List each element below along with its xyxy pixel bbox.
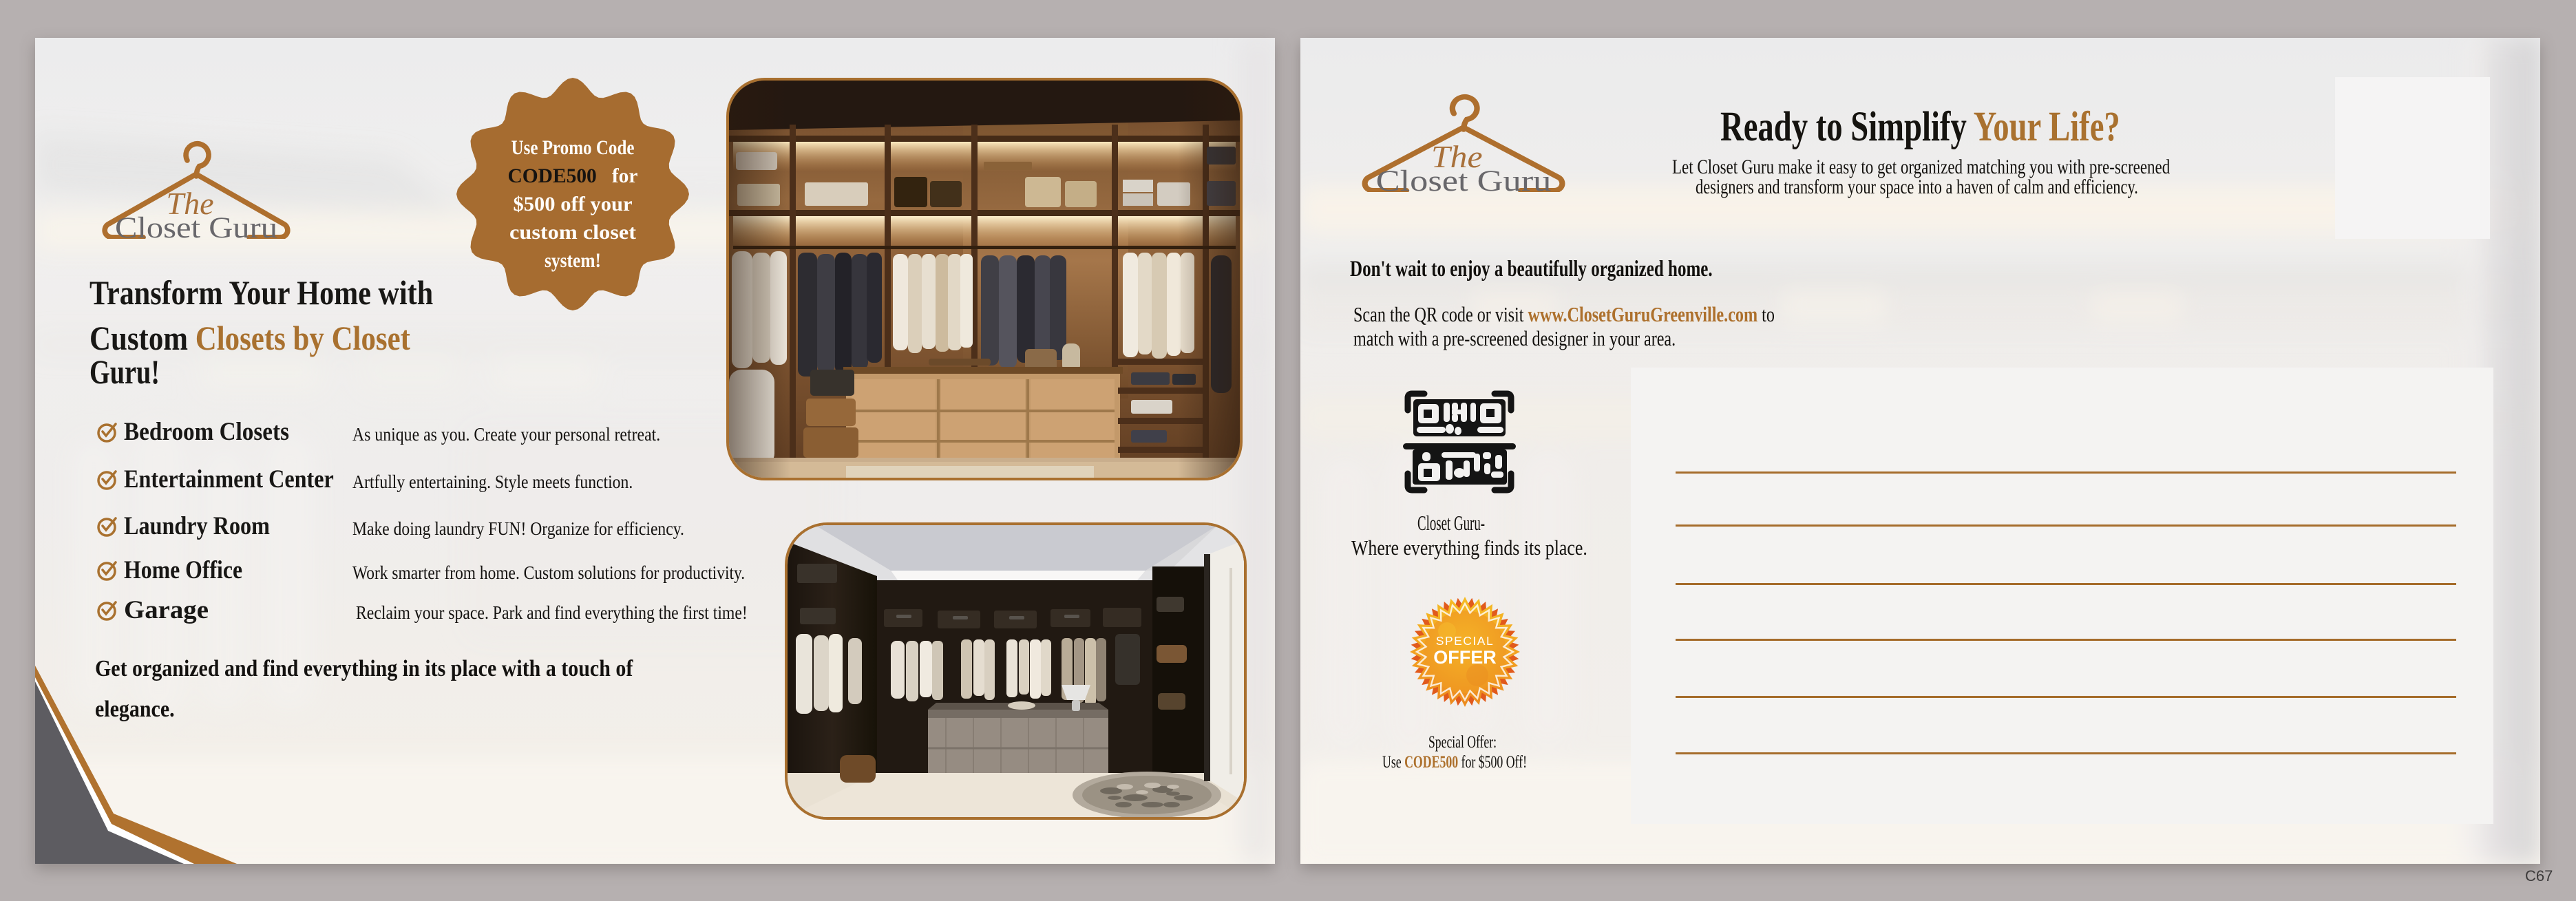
svg-text:system!: system! <box>545 249 601 272</box>
svg-text:Closet Guru: Closet Guru <box>115 212 277 239</box>
svg-text:CODE500 for: CODE500 for <box>508 165 638 187</box>
svg-text:$500 off your: $500 off your <box>514 193 633 215</box>
svg-text:Closet Guru: Closet Guru <box>1376 165 1552 192</box>
svg-text:custom closet: custom closet <box>509 221 636 244</box>
svg-text:SPECIAL: SPECIAL <box>1436 634 1494 648</box>
svg-text:Use Promo Code: Use Promo Code <box>511 136 635 159</box>
svg-text:OFFER: OFFER <box>1433 647 1497 668</box>
